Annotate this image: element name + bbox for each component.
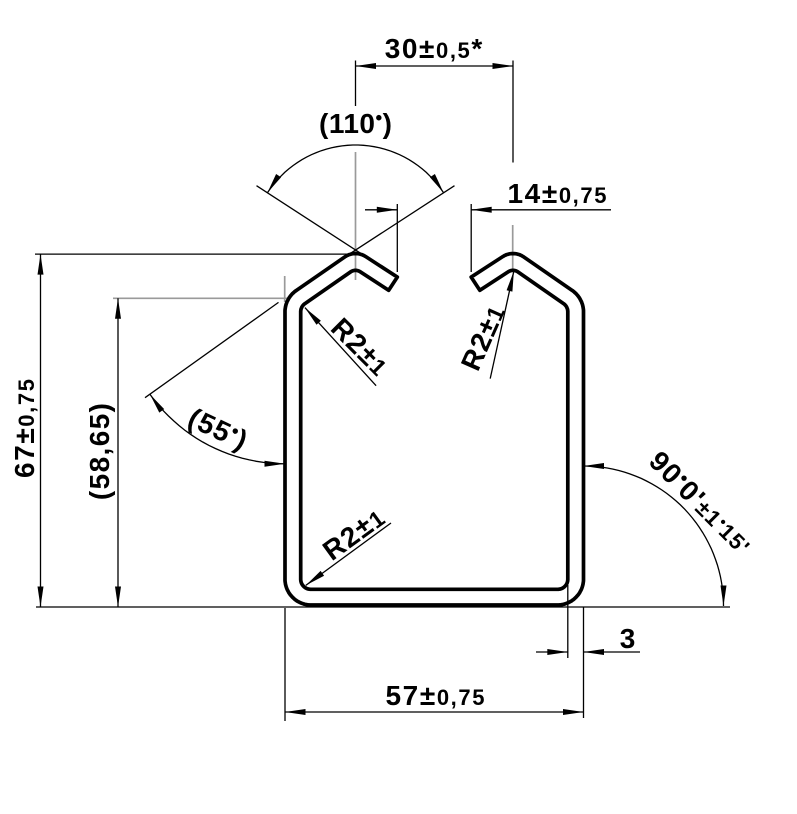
svg-text:14±0,75: 14±0,75 xyxy=(508,178,609,209)
svg-text:(58,65): (58,65) xyxy=(84,402,115,501)
svg-text:67±0,75: 67±0,75 xyxy=(9,377,40,478)
svg-text:3: 3 xyxy=(620,623,636,654)
svg-text:57±0,75: 57±0,75 xyxy=(386,680,487,711)
svg-text:30±0,5*: 30±0,5* xyxy=(385,33,484,64)
